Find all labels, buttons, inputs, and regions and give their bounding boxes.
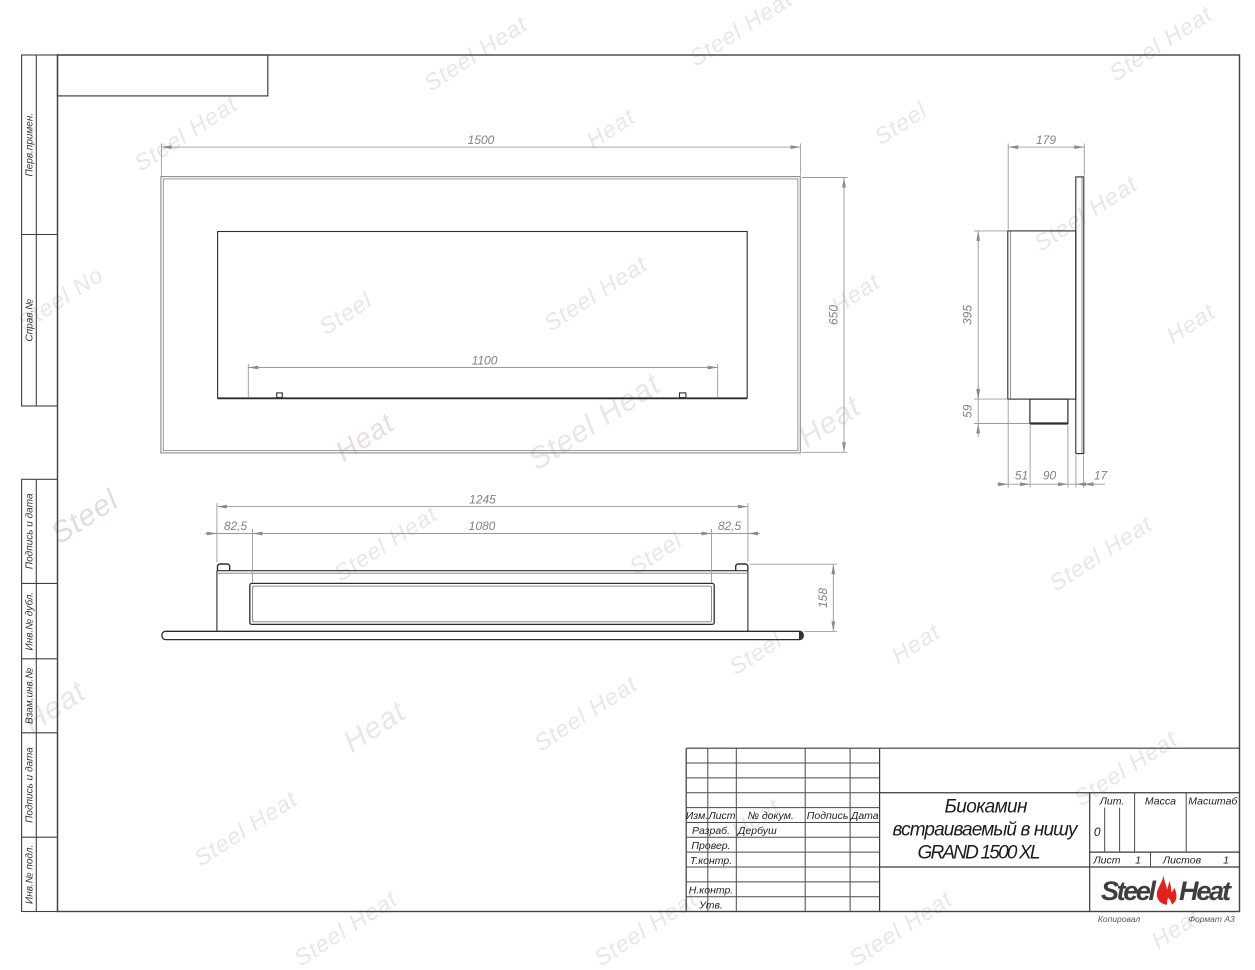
svg-text:Steel Heat: Steel Heat — [539, 250, 652, 336]
svg-text:Heat: Heat — [582, 103, 641, 154]
svg-text:Steel Heat: Steel Heat — [844, 885, 957, 970]
svg-text:1080: 1080 — [469, 519, 496, 533]
svg-text:Лит.: Лит. — [1099, 795, 1125, 807]
svg-text:Биокамин: Биокамин — [945, 797, 1029, 818]
svg-text:Перв.примен.: Перв.примен. — [25, 113, 36, 177]
svg-text:Steel Heat: Steel Heat — [1104, 0, 1217, 86]
svg-text:Листов: Листов — [1162, 855, 1202, 867]
svg-text:Steel: Steel — [724, 627, 786, 680]
svg-text:Изм.: Изм. — [686, 810, 708, 822]
svg-text:Heat: Heat — [338, 694, 413, 759]
svg-text:Steel Heat: Steel Heat — [529, 670, 642, 756]
svg-text:Steel: Steel — [314, 287, 376, 340]
svg-text:GRAND 1500 XL: GRAND 1500 XL — [918, 843, 1041, 864]
svg-text:1500: 1500 — [468, 133, 495, 147]
svg-text:395: 395 — [961, 305, 975, 325]
svg-text:Масштаб: Масштаб — [1188, 795, 1238, 807]
svg-text:158: 158 — [816, 588, 830, 608]
svg-text:179: 179 — [1036, 133, 1056, 147]
svg-text:Подпись и дата: Подпись и дата — [25, 747, 36, 823]
svg-text:Steel: Steel — [1101, 876, 1156, 906]
svg-text:1: 1 — [1223, 855, 1229, 867]
svg-text:Взам.инв.№: Взам.инв.№ — [25, 667, 36, 723]
svg-text:Т.контр.: Т.контр. — [690, 855, 732, 867]
svg-text:90: 90 — [1043, 469, 1057, 483]
svg-text:Дата: Дата — [850, 810, 879, 822]
svg-text:Steel Heat: Steel Heat — [129, 90, 242, 176]
svg-text:Heat: Heat — [1162, 298, 1221, 349]
svg-text:Дербуш: Дербуш — [737, 825, 777, 837]
svg-text:Heat: Heat — [793, 389, 868, 454]
svg-text:1: 1 — [1135, 855, 1141, 867]
svg-text:Heat: Heat — [1179, 876, 1232, 906]
svg-text:Heat: Heat — [1147, 903, 1206, 954]
svg-text:Steel Heat: Steel Heat — [589, 885, 702, 970]
svg-text:1100: 1100 — [472, 353, 498, 367]
svg-text:51: 51 — [1015, 469, 1028, 483]
svg-text:Heat: Heat — [887, 618, 946, 669]
svg-text:Разраб.: Разраб. — [692, 825, 730, 837]
svg-text:59: 59 — [961, 404, 975, 418]
svg-text:650: 650 — [827, 305, 841, 325]
svg-text:Steel Heat: Steel Heat — [523, 367, 667, 477]
svg-text:№ докум.: № докум. — [748, 810, 794, 822]
svg-text:Heat: Heat — [330, 407, 400, 468]
svg-text:Steel: Steel — [624, 527, 686, 580]
svg-text:Копировал: Копировал — [1098, 914, 1140, 924]
svg-text:Лист: Лист — [707, 810, 735, 822]
svg-text:82,5: 82,5 — [224, 519, 248, 533]
svg-text:Подпись и дата: Подпись и дата — [25, 493, 36, 569]
svg-text:82,5: 82,5 — [718, 519, 742, 533]
svg-text:Лист: Лист — [1092, 855, 1120, 867]
svg-text:Масса: Масса — [1145, 795, 1176, 807]
svg-text:Инв.№ дубл.: Инв.№ дубл. — [24, 592, 36, 651]
svg-text:1245: 1245 — [469, 493, 496, 507]
svg-text:Н.контр.: Н.контр. — [689, 885, 733, 897]
svg-text:Утв.: Утв. — [698, 899, 723, 911]
svg-text:Steel Heat: Steel Heat — [684, 0, 797, 71]
svg-text:Steel Heat: Steel Heat — [1029, 170, 1142, 256]
svg-text:Steel Heat: Steel Heat — [189, 785, 302, 871]
svg-text:Steel Heat: Steel Heat — [419, 10, 532, 96]
svg-text:0: 0 — [1094, 825, 1101, 839]
svg-text:Steel: Steel — [869, 97, 931, 150]
svg-text:Подпись: Подпись — [807, 810, 849, 822]
svg-text:Провер.: Провер. — [691, 840, 730, 852]
svg-text:17: 17 — [1094, 469, 1109, 483]
svg-text:Инв.№ подл.: Инв.№ подл. — [25, 845, 36, 904]
svg-text:Формат А3: Формат А3 — [1188, 914, 1235, 924]
svg-text:Справ.№: Справ.№ — [25, 299, 36, 342]
svg-text:встраиваемый в нишу: встраиваемый в нишу — [893, 820, 1080, 841]
svg-text:Steel Heat: Steel Heat — [289, 885, 402, 970]
svg-text:Steel Heat: Steel Heat — [1044, 510, 1157, 596]
